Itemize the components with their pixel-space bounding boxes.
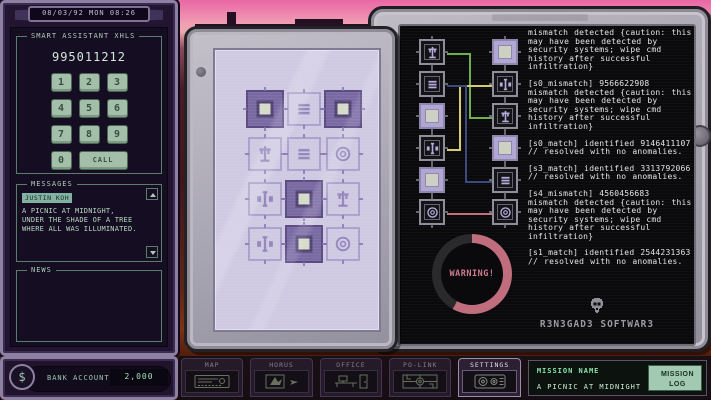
keypad-key-4[interactable]: 4 (51, 99, 72, 118)
chip-left-6-target[interactable] (419, 199, 445, 225)
lines-glyph-icon (295, 100, 313, 118)
screw-icon (196, 67, 206, 77)
puzzle-tile-4-lines[interactable] (287, 137, 321, 171)
bezel-emboss (492, 14, 588, 21)
chip-right-3-scales[interactable] (492, 103, 518, 129)
chip-right-2-drone[interactable] (492, 71, 518, 97)
news-panel: NEWS (16, 270, 162, 342)
log-entry: [s1_match] identified 2544231363 // reso… (528, 249, 694, 266)
messages-panel: MESSAGES JUSTIN KOH A PICNIC AT MIDNIGHT… (16, 184, 162, 262)
target-glyph-icon (334, 145, 352, 163)
dollar-coin-icon: $ (9, 364, 35, 390)
log-entry: [s4_mismatch] 4560456683 mismatch detect… (528, 190, 694, 242)
warning-gauge: WARNING! (432, 234, 512, 314)
office-icon (329, 373, 373, 391)
brand-name: R3N3GAD3 SOFTWAR3 (522, 319, 672, 330)
keypad-key-7[interactable]: 7 (51, 125, 72, 144)
puzzle-tile-2-square[interactable] (326, 92, 360, 126)
mission-name-label: MISSION NAME (537, 367, 600, 375)
log-entry: mismatch detected {caution: this may hav… (528, 29, 694, 72)
branding: R3N3GAD3 SOFTWAR3 (522, 298, 672, 330)
chip-right-4-square[interactable] (492, 135, 518, 161)
target-glyph-icon (426, 206, 439, 219)
target-glyph-icon (499, 206, 512, 219)
assistant-screen: SMART ASSISTANT XHLS 995011212 123456789… (10, 27, 168, 347)
puzzle-tile-3-scales[interactable] (248, 137, 282, 171)
settings-icon (468, 373, 512, 391)
chip-right-5-lines[interactable] (492, 167, 518, 193)
keypad-key-6[interactable]: 6 (107, 99, 128, 118)
skull-icon (589, 298, 605, 313)
message-body: A PICNIC AT MIDNIGHT, UNDER THE SHADE OF… (17, 206, 161, 235)
tab-horus[interactable]: HORUS (250, 358, 312, 397)
target-glyph-icon (334, 235, 352, 253)
chip-left-4-drone[interactable] (419, 135, 445, 161)
puzzle-tile-0-square[interactable] (248, 92, 282, 126)
scales-glyph-icon (499, 110, 512, 123)
puzzle-tile-6-drone[interactable] (248, 182, 282, 216)
bank-account-bar: $ BANK ACCOUNT 2,000 (0, 356, 178, 400)
lines-glyph-icon (499, 174, 512, 187)
keypad-key-1[interactable]: 1 (51, 73, 72, 92)
puzzle-tile-8-scales[interactable] (326, 182, 360, 216)
log-entry: [s0_mismatch] 9566622908 mismatch detect… (528, 80, 694, 132)
chip-right-1-square[interactable] (492, 39, 518, 65)
mission-panel: MISSION NAME A PICNIC AT MIDNIGHT MISSIO… (528, 360, 707, 396)
chip-left-3-square[interactable] (419, 103, 445, 129)
drone-glyph-icon (426, 142, 439, 155)
keypad-key-3[interactable]: 3 (107, 73, 128, 92)
message-sender[interactable]: JUSTIN KOH (22, 193, 72, 203)
keypad-key-8[interactable]: 8 (79, 125, 100, 144)
puzzle-tile-7-square[interactable] (287, 182, 321, 216)
call-button[interactable]: CALL (79, 151, 128, 170)
tab-map[interactable]: MAP (181, 358, 243, 397)
dialed-number-display: 995011212 (17, 50, 161, 64)
taskbar: MAP HORUS OFFICE (178, 356, 711, 400)
messages-scroll-down-icon[interactable] (146, 246, 158, 258)
drone-glyph-icon (499, 78, 512, 91)
messages-scroll-up-icon[interactable] (146, 188, 158, 200)
hacking-terminal-device: mismatch detected {caution: this may hav… (368, 6, 711, 352)
puzzle-screen (213, 48, 381, 332)
keypad-key-2[interactable]: 2 (79, 73, 100, 92)
chip-left-2-lines[interactable] (419, 71, 445, 97)
mission-log-button[interactable]: MISSION LOG (648, 365, 702, 391)
drone-glyph-icon (256, 235, 274, 253)
scales-glyph-icon (334, 190, 352, 208)
keypad-key-0[interactable]: 0 (51, 151, 72, 170)
mission-name: A PICNIC AT MIDNIGHT (537, 383, 641, 391)
tab-office[interactable]: OFFICE (320, 358, 382, 397)
lines-glyph-icon (426, 78, 439, 91)
tab-settings[interactable]: SETTINGS (458, 358, 520, 397)
scales-glyph-icon (256, 145, 274, 163)
bank-account-value: 2,000 (110, 369, 168, 386)
dialer-panel: SMART ASSISTANT XHLS 995011212 123456789… (16, 36, 162, 174)
terminal-screen: mismatch detected {caution: this may hav… (398, 24, 696, 346)
log-entry: [s3_match] identified 3313792066 // reso… (528, 165, 694, 182)
keypad: 1234567890CALL (17, 73, 161, 170)
datetime-display: 08/03/92 MON 08:26 (28, 6, 150, 22)
puzzle-tile-5-target[interactable] (326, 137, 360, 171)
puzzle-tile-1-lines[interactable] (287, 92, 321, 126)
bank-account-label: BANK ACCOUNT (47, 374, 110, 382)
news-panel-title: NEWS (27, 266, 56, 274)
scales-glyph-icon (426, 46, 439, 59)
keypad-key-9[interactable]: 9 (107, 125, 128, 144)
puzzle-device (184, 26, 398, 352)
warning-label: WARNING! (432, 234, 512, 314)
puzzle-tile-10-square[interactable] (287, 227, 321, 261)
log-entry: [s0_match] identified 9146411107 // reso… (528, 140, 694, 157)
terminal-log: mismatch detected {caution: this may hav… (528, 29, 694, 275)
puzzle-tile-9-drone[interactable] (248, 227, 282, 261)
tab-po-link[interactable]: PO-LINK (389, 358, 451, 397)
po-link-icon (398, 373, 442, 391)
horus-icon (260, 373, 304, 391)
chip-left-1-scales[interactable] (419, 39, 445, 65)
smart-assistant-device: 08/03/92 MON 08:26 SMART ASSISTANT XHLS … (0, 0, 178, 356)
chip-left-5-square[interactable] (419, 167, 445, 193)
keypad-key-5[interactable]: 5 (79, 99, 100, 118)
drone-glyph-icon (256, 190, 274, 208)
puzzle-tile-11-target[interactable] (326, 227, 360, 261)
messages-panel-title: MESSAGES (27, 180, 77, 188)
chip-right-6-target[interactable] (492, 199, 518, 225)
dialer-panel-title: SMART ASSISTANT XHLS (27, 32, 139, 40)
lines-glyph-icon (295, 145, 313, 163)
map-icon (190, 373, 234, 391)
puzzle-grid (248, 92, 360, 261)
